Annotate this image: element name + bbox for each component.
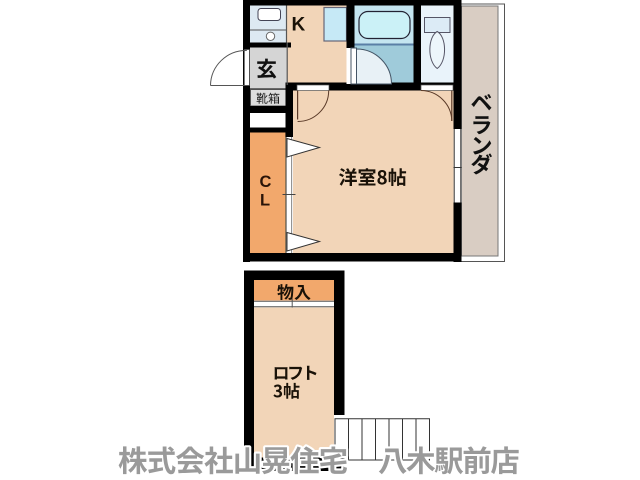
svg-text:K: K: [292, 15, 306, 36]
svg-text:C: C: [260, 173, 272, 191]
svg-text:L: L: [260, 192, 270, 210]
